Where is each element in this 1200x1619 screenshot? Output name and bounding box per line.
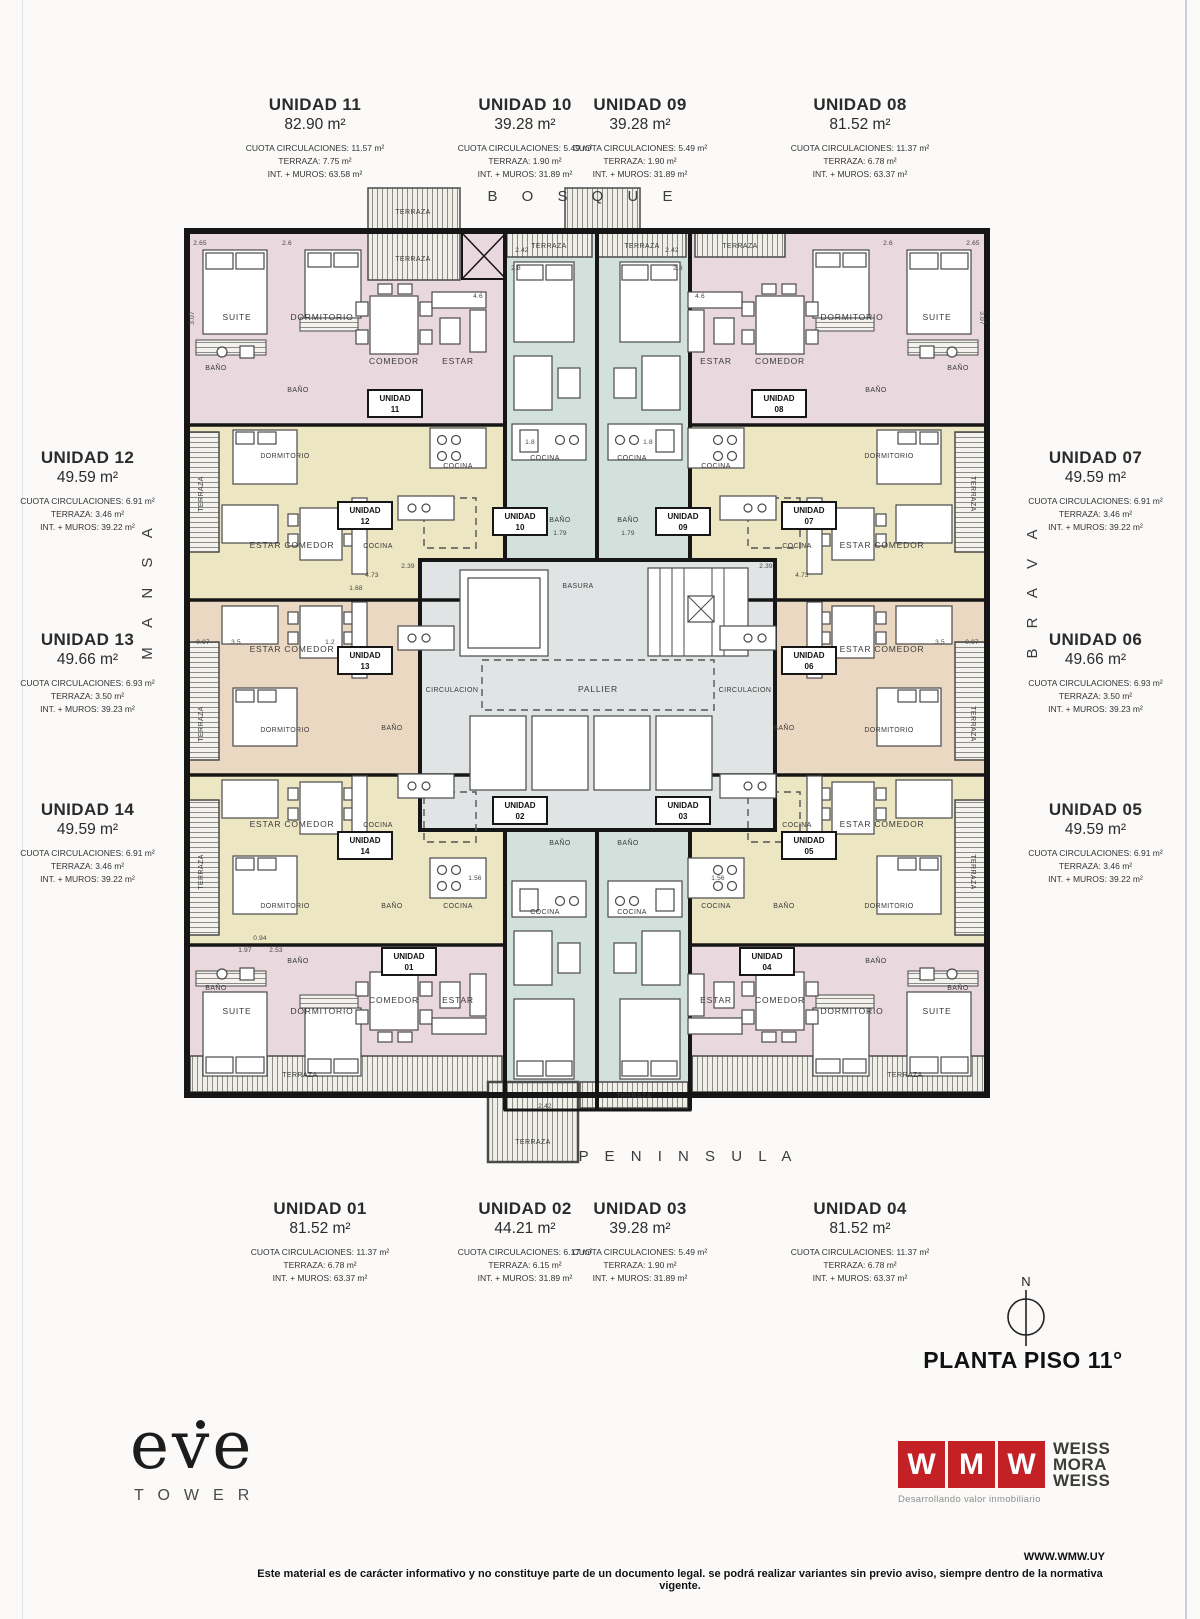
room-label: BAÑO xyxy=(287,956,309,965)
unit-note-05: UNIDAD 05 49.59 m² CUOTA CIRCULACIONES: … xyxy=(1008,800,1183,885)
room-label: SUITE xyxy=(922,1006,951,1016)
wmw-logo: W M W WEISS MORA WEISS xyxy=(898,1441,1110,1489)
unit-terraza: TERRAZA: 3.50 m² xyxy=(1008,690,1183,703)
unit-area: 82.90 m² xyxy=(205,116,425,134)
svg-text:UNIDAD: UNIDAD xyxy=(349,836,380,845)
room-label: ESTAR COMEDOR xyxy=(840,540,925,550)
terrace-label: TERRAZA xyxy=(969,476,976,511)
unit-int-muros: INT. + MUROS: 63.37 m² xyxy=(750,1272,970,1285)
svg-text:14: 14 xyxy=(361,847,370,856)
wmw-square-w2: W xyxy=(998,1441,1045,1488)
svg-text:UNIDAD: UNIDAD xyxy=(349,651,380,660)
svg-text:1.2: 1.2 xyxy=(325,639,335,646)
unit-note-01: UNIDAD 01 81.52 m² CUOTA CIRCULACIONES: … xyxy=(210,1199,430,1284)
unit-note-06: UNIDAD 06 49.66 m² CUOTA CIRCULACIONES: … xyxy=(1008,630,1183,715)
plan-unit-tag-09: UNIDAD09 xyxy=(656,508,710,535)
floor-title: PLANTA PISO 11° xyxy=(923,1347,1122,1373)
unit-note-11: UNIDAD 11 82.90 m² CUOTA CIRCULACIONES: … xyxy=(205,95,425,180)
room-label: SUITE xyxy=(222,312,251,322)
room-label: DORMITORIO xyxy=(820,1006,883,1016)
room-label: COCINA xyxy=(782,822,812,829)
room-label: COCINA xyxy=(617,455,647,462)
room-label: BAÑO xyxy=(549,838,571,847)
unit-cuota: CUOTA CIRCULACIONES: 5.49 m² xyxy=(545,1246,735,1259)
unit-terraza: TERRAZA: 3.50 m² xyxy=(0,690,175,703)
room-label: CIRCULACION xyxy=(719,687,772,694)
plan-unit-tag-06: UNIDAD06 xyxy=(782,647,836,674)
svg-text:03: 03 xyxy=(679,812,688,821)
room-label: BAÑO xyxy=(549,515,571,524)
svg-text:UNIDAD: UNIDAD xyxy=(793,651,824,660)
unit-area: 49.59 m² xyxy=(0,469,175,487)
room-label: BAÑO xyxy=(865,385,887,394)
room-label: CIRCULACION xyxy=(426,687,479,694)
room-label: COCINA xyxy=(363,822,393,829)
room-label: DORMITORIO xyxy=(260,903,310,910)
wmw-name-weiss2: WEISS xyxy=(1053,1473,1110,1489)
terrace-label: TERRAZA xyxy=(198,706,205,741)
wmw-names: WEISS MORA WEISS xyxy=(1053,1441,1110,1489)
svg-text:UNIDAD: UNIDAD xyxy=(393,952,424,961)
svg-text:UNIDAD: UNIDAD xyxy=(751,952,782,961)
terrace-label: TERRAZA xyxy=(887,1072,922,1079)
unit-name: UNIDAD 01 xyxy=(210,1199,430,1219)
unit-area: 49.66 m² xyxy=(0,651,175,669)
terrace-label: TERRAZA xyxy=(395,209,430,216)
room-label: COCINA xyxy=(530,909,560,916)
unit-terraza: TERRAZA: 6.78 m² xyxy=(750,1259,970,1272)
room-label: DORMITORIO xyxy=(260,453,310,460)
unit-terraza: TERRAZA: 3.46 m² xyxy=(1008,508,1183,521)
plan-unit-tag-12: UNIDAD12 xyxy=(338,502,392,529)
unit-int-muros: INT. + MUROS: 39.22 m² xyxy=(1008,873,1183,886)
room-label: COCINA xyxy=(530,455,560,462)
svg-text:2.65: 2.65 xyxy=(966,240,980,247)
unit-name: UNIDAD 07 xyxy=(1008,448,1183,468)
wmw-letter: W xyxy=(907,1450,935,1480)
compass: N xyxy=(1008,1274,1044,1346)
svg-text:UNIDAD: UNIDAD xyxy=(793,836,824,845)
room-label: COMEDOR xyxy=(369,356,419,366)
room-label: BAÑO xyxy=(773,723,795,732)
eve-name: eve xyxy=(130,1407,254,1484)
svg-text:1.8: 1.8 xyxy=(525,439,535,446)
unit-area: 49.59 m² xyxy=(1008,469,1183,487)
orientation-label-bosque: B O S Q U E xyxy=(487,188,682,205)
wmw-square-w1: W xyxy=(898,1441,945,1488)
unit-cuota: CUOTA CIRCULACIONES: 6.91 m² xyxy=(1008,847,1183,860)
svg-text:UNIDAD: UNIDAD xyxy=(349,506,380,515)
disclaimer-text: Este material es de carácter informativo… xyxy=(240,1568,1120,1592)
unit-area: 49.59 m² xyxy=(1008,821,1183,839)
unit-terraza: TERRAZA: 6.78 m² xyxy=(210,1259,430,1272)
svg-text:UNIDAD: UNIDAD xyxy=(667,512,698,521)
unit-name: UNIDAD 05 xyxy=(1008,800,1183,820)
unit-terraza: TERRAZA: 6.78 m² xyxy=(750,155,970,168)
room-label: DORMITORIO xyxy=(864,453,914,460)
svg-text:1.56: 1.56 xyxy=(711,875,725,882)
room-label: ESTAR xyxy=(700,995,732,1005)
orientation-label-peninsula: P E N I N S U L A xyxy=(579,1148,798,1165)
room-label: COCINA xyxy=(363,543,393,550)
unit-cuota: CUOTA CIRCULACIONES: 11.37 m² xyxy=(750,1246,970,1259)
unit-terraza: TERRAZA: 1.90 m² xyxy=(545,155,735,168)
unit-name: UNIDAD 09 xyxy=(545,95,735,115)
room-label: BAÑO xyxy=(617,838,639,847)
unit-name: UNIDAD 06 xyxy=(1008,630,1183,650)
unit-note-12: UNIDAD 12 49.59 m² CUOTA CIRCULACIONES: … xyxy=(0,448,175,533)
svg-text:01: 01 xyxy=(405,963,414,972)
svg-text:1.68: 1.68 xyxy=(349,585,363,592)
unit-int-muros: INT. + MUROS: 31.89 m² xyxy=(545,168,735,181)
room-label: COCINA xyxy=(617,909,647,916)
svg-text:UNIDAD: UNIDAD xyxy=(379,394,410,403)
svg-text:12: 12 xyxy=(361,517,370,526)
unit-int-muros: INT. + MUROS: 63.58 m² xyxy=(205,168,425,181)
room-label: DORMITORIO xyxy=(864,727,914,734)
unit-terraza: TERRAZA: 1.90 m² xyxy=(545,1259,735,1272)
terrace-label: TERRAZA xyxy=(624,243,659,250)
unit-name: UNIDAD 04 xyxy=(750,1199,970,1219)
unit-name: UNIDAD 03 xyxy=(545,1199,735,1219)
terrace-label: TERRAZA xyxy=(198,476,205,511)
room-label: SUITE xyxy=(222,1006,251,1016)
wmw-letter: W xyxy=(1007,1450,1035,1480)
svg-text:2.6: 2.6 xyxy=(282,240,292,247)
unit-cuota: CUOTA CIRCULACIONES: 6.91 m² xyxy=(0,847,175,860)
plan-unit-tag-11: UNIDAD11 xyxy=(368,390,422,417)
unit-area: 81.52 m² xyxy=(210,1220,430,1238)
unit-note-03: UNIDAD 03 39.28 m² CUOTA CIRCULACIONES: … xyxy=(545,1199,735,1284)
svg-text:02: 02 xyxy=(516,812,525,821)
svg-text:0.94: 0.94 xyxy=(253,935,267,942)
unit-cuota: CUOTA CIRCULACIONES: 11.57 m² xyxy=(205,142,425,155)
svg-text:10: 10 xyxy=(516,523,525,532)
unit-int-muros: INT. + MUROS: 39.22 m² xyxy=(0,521,175,534)
svg-text:2.53: 2.53 xyxy=(269,947,283,954)
unit-cuota: CUOTA CIRCULACIONES: 11.37 m² xyxy=(210,1246,430,1259)
room-label: ESTAR COMEDOR xyxy=(250,644,335,654)
unit-note-14: UNIDAD 14 49.59 m² CUOTA CIRCULACIONES: … xyxy=(0,800,175,885)
unit-name: UNIDAD 14 xyxy=(0,800,175,820)
room-label: BAÑO xyxy=(381,723,403,732)
room-label: BAÑO xyxy=(947,363,969,372)
terrace-label: TERRAZA xyxy=(969,706,976,741)
room-label: COCINA xyxy=(701,903,731,910)
plan-unit-tag-08: UNIDAD08 xyxy=(752,390,806,417)
room-label: PALLIER xyxy=(578,684,618,694)
svg-text:3.07: 3.07 xyxy=(189,311,196,325)
svg-text:2.8: 2.8 xyxy=(673,265,683,272)
unit-area: 39.28 m² xyxy=(545,1220,735,1238)
room-label: COCINA xyxy=(443,463,473,470)
room-label: ESTAR COMEDOR xyxy=(840,819,925,829)
svg-text:09: 09 xyxy=(679,523,688,532)
room-label: ESTAR xyxy=(442,995,474,1005)
unit-name: UNIDAD 13 xyxy=(0,630,175,650)
room-label: DORMITORIO xyxy=(260,727,310,734)
unit-note-08: UNIDAD 08 81.52 m² CUOTA CIRCULACIONES: … xyxy=(750,95,970,180)
svg-text:1.8: 1.8 xyxy=(643,439,653,446)
svg-text:4.6: 4.6 xyxy=(473,293,483,300)
plan-unit-tag-10: UNIDAD10 xyxy=(493,508,547,535)
room-label: COMEDOR xyxy=(755,356,805,366)
unit-cuota: CUOTA CIRCULACIONES: 5.49 m² xyxy=(545,142,735,155)
svg-text:3.07: 3.07 xyxy=(978,311,985,325)
unit-area: 81.52 m² xyxy=(750,1220,970,1238)
website-url: WWW.WMW.UY xyxy=(935,1551,1105,1563)
eve-tower-logo: eve TOWER xyxy=(130,1413,340,1505)
terrace-label: TERRAZA xyxy=(395,256,430,263)
svg-text:2.39: 2.39 xyxy=(759,563,773,570)
unit-name: UNIDAD 11 xyxy=(205,95,425,115)
svg-text:04: 04 xyxy=(763,963,772,972)
unit-area: 39.28 m² xyxy=(545,116,735,134)
unit-int-muros: INT. + MUROS: 39.23 m² xyxy=(1008,703,1183,716)
svg-text:UNIDAD: UNIDAD xyxy=(793,506,824,515)
terrace-label: TERRAZA xyxy=(515,1139,550,1146)
unit-cuota: CUOTA CIRCULACIONES: 6.93 m² xyxy=(0,677,175,690)
svg-text:13: 13 xyxy=(361,662,370,671)
svg-text:2.8: 2.8 xyxy=(511,265,521,272)
room-label: SUITE xyxy=(922,312,951,322)
room-label: ESTAR COMEDOR xyxy=(250,819,335,829)
room-label: COCINA xyxy=(443,903,473,910)
svg-text:4.73: 4.73 xyxy=(795,572,809,579)
unit-terraza: TERRAZA: 7.75 m² xyxy=(205,155,425,168)
plan-unit-tag-13: UNIDAD13 xyxy=(338,647,392,674)
room-label: ESTAR COMEDOR xyxy=(250,540,335,550)
svg-text:1.79: 1.79 xyxy=(621,530,635,537)
plan-unit-tag-05: UNIDAD05 xyxy=(782,832,836,859)
unit-area: 81.52 m² xyxy=(750,116,970,134)
wmw-tagline: Desarrollando valor inmobiliario xyxy=(898,1494,1041,1505)
wmw-square-m: M xyxy=(948,1441,995,1488)
unit-area: 49.66 m² xyxy=(1008,651,1183,669)
wmw-letter: M xyxy=(959,1450,984,1480)
unit-terraza: TERRAZA: 3.46 m² xyxy=(1008,860,1183,873)
unit-cuota: CUOTA CIRCULACIONES: 6.93 m² xyxy=(1008,677,1183,690)
room-label: BAÑO xyxy=(287,385,309,394)
terrace-label: TERRAZA xyxy=(616,1093,651,1100)
svg-text:0.97: 0.97 xyxy=(965,639,979,646)
room-label: COMEDOR xyxy=(369,995,419,1005)
terrace-label: TERRAZA xyxy=(969,854,976,889)
room-label: DORMITORIO xyxy=(290,1006,353,1016)
unit-note-09: UNIDAD 09 39.28 m² CUOTA CIRCULACIONES: … xyxy=(545,95,735,180)
plan-unit-tag-07: UNIDAD07 xyxy=(782,502,836,529)
unit-cuota: CUOTA CIRCULACIONES: 11.37 m² xyxy=(750,142,970,155)
room-label: ESTAR COMEDOR xyxy=(840,644,925,654)
room-label: DORMITORIO xyxy=(864,903,914,910)
room-label: BAÑO xyxy=(205,983,227,992)
svg-text:2.6: 2.6 xyxy=(883,240,893,247)
unit-regions xyxy=(187,231,987,1110)
svg-text:4.73: 4.73 xyxy=(365,572,379,579)
unit-note-13: UNIDAD 13 49.66 m² CUOTA CIRCULACIONES: … xyxy=(0,630,175,715)
floor-plan-page: SUITE DORMITORIO COMEDOR ESTAR BAÑO BAÑO… xyxy=(0,0,1200,1619)
room-label: COMEDOR xyxy=(755,995,805,1005)
room-label: BAÑO xyxy=(381,901,403,910)
svg-text:1.56: 1.56 xyxy=(468,875,482,882)
eve-wordmark: eve xyxy=(130,1413,340,1479)
unit-int-muros: INT. + MUROS: 39.22 m² xyxy=(0,873,175,886)
room-label: DORMITORIO xyxy=(820,312,883,322)
room-label: BAÑO xyxy=(617,515,639,524)
room-label: BAÑO xyxy=(773,901,795,910)
room-label: COCINA xyxy=(782,543,812,550)
plan-unit-tag-01: UNIDAD01 xyxy=(382,948,436,975)
svg-text:2.42: 2.42 xyxy=(665,247,679,254)
svg-text:1.79: 1.79 xyxy=(553,530,567,537)
room-label: ESTAR xyxy=(700,356,732,366)
svg-text:0.97: 0.97 xyxy=(196,639,210,646)
svg-text:11: 11 xyxy=(391,405,400,414)
svg-text:2.65: 2.65 xyxy=(193,240,207,247)
unit-cuota: CUOTA CIRCULACIONES: 6.91 m² xyxy=(0,495,175,508)
plan-unit-tag-02: UNIDAD02 xyxy=(493,797,547,824)
unit-cuota: CUOTA CIRCULACIONES: 6.91 m² xyxy=(1008,495,1183,508)
unit-int-muros: INT. + MUROS: 31.89 m² xyxy=(545,1272,735,1285)
room-label: BASURA xyxy=(562,583,593,590)
eve-tower-label: TOWER xyxy=(134,1487,340,1505)
compass-north-label: N xyxy=(1021,1274,1030,1289)
unit-int-muros: INT. + MUROS: 39.23 m² xyxy=(0,703,175,716)
svg-text:UNIDAD: UNIDAD xyxy=(504,512,535,521)
plan-unit-tag-03: UNIDAD03 xyxy=(656,797,710,824)
svg-text:06: 06 xyxy=(805,662,814,671)
room-label: DORMITORIO xyxy=(290,312,353,322)
unit-note-04: UNIDAD 04 81.52 m² CUOTA CIRCULACIONES: … xyxy=(750,1199,970,1284)
wmw-squares: W M W xyxy=(898,1441,1045,1488)
unit-area: 49.59 m² xyxy=(0,821,175,839)
unit-terraza: TERRAZA: 3.46 m² xyxy=(0,508,175,521)
svg-text:2.39: 2.39 xyxy=(401,563,415,570)
unit-note-07: UNIDAD 07 49.59 m² CUOTA CIRCULACIONES: … xyxy=(1008,448,1183,533)
svg-text:3.5: 3.5 xyxy=(231,639,241,646)
room-label: BAÑO xyxy=(947,983,969,992)
unit-terraza: TERRAZA: 3.46 m² xyxy=(0,860,175,873)
terrace-label: TERRAZA xyxy=(282,1072,317,1079)
svg-text:1.97: 1.97 xyxy=(238,947,252,954)
svg-text:4.6: 4.6 xyxy=(695,293,705,300)
svg-text:05: 05 xyxy=(805,847,814,856)
terrace-label: TERRAZA xyxy=(531,243,566,250)
svg-text:UNIDAD: UNIDAD xyxy=(667,801,698,810)
unit-int-muros: INT. + MUROS: 63.37 m² xyxy=(750,168,970,181)
plan-unit-tag-04: UNIDAD04 xyxy=(740,948,794,975)
unit-int-muros: INT. + MUROS: 63.37 m² xyxy=(210,1272,430,1285)
room-label: BAÑO xyxy=(205,363,227,372)
svg-text:08: 08 xyxy=(775,405,784,414)
room-label: COCINA xyxy=(701,463,731,470)
eve-logo-dot xyxy=(196,1420,205,1429)
svg-text:2.42: 2.42 xyxy=(515,247,529,254)
unit-int-muros: INT. + MUROS: 39.22 m² xyxy=(1008,521,1183,534)
plan-unit-tag-14: UNIDAD14 xyxy=(338,832,392,859)
unit-name: UNIDAD 12 xyxy=(0,448,175,468)
room-label: BAÑO xyxy=(865,956,887,965)
svg-text:UNIDAD: UNIDAD xyxy=(504,801,535,810)
svg-text:2.42: 2.42 xyxy=(538,1103,552,1110)
svg-text:07: 07 xyxy=(805,517,814,526)
terrace-label: TERRAZA xyxy=(722,243,757,250)
terrace-label: TERRAZA xyxy=(198,854,205,889)
svg-text:UNIDAD: UNIDAD xyxy=(763,394,794,403)
room-label: ESTAR xyxy=(442,356,474,366)
svg-text:3.5: 3.5 xyxy=(935,639,945,646)
unit-name: UNIDAD 08 xyxy=(750,95,970,115)
